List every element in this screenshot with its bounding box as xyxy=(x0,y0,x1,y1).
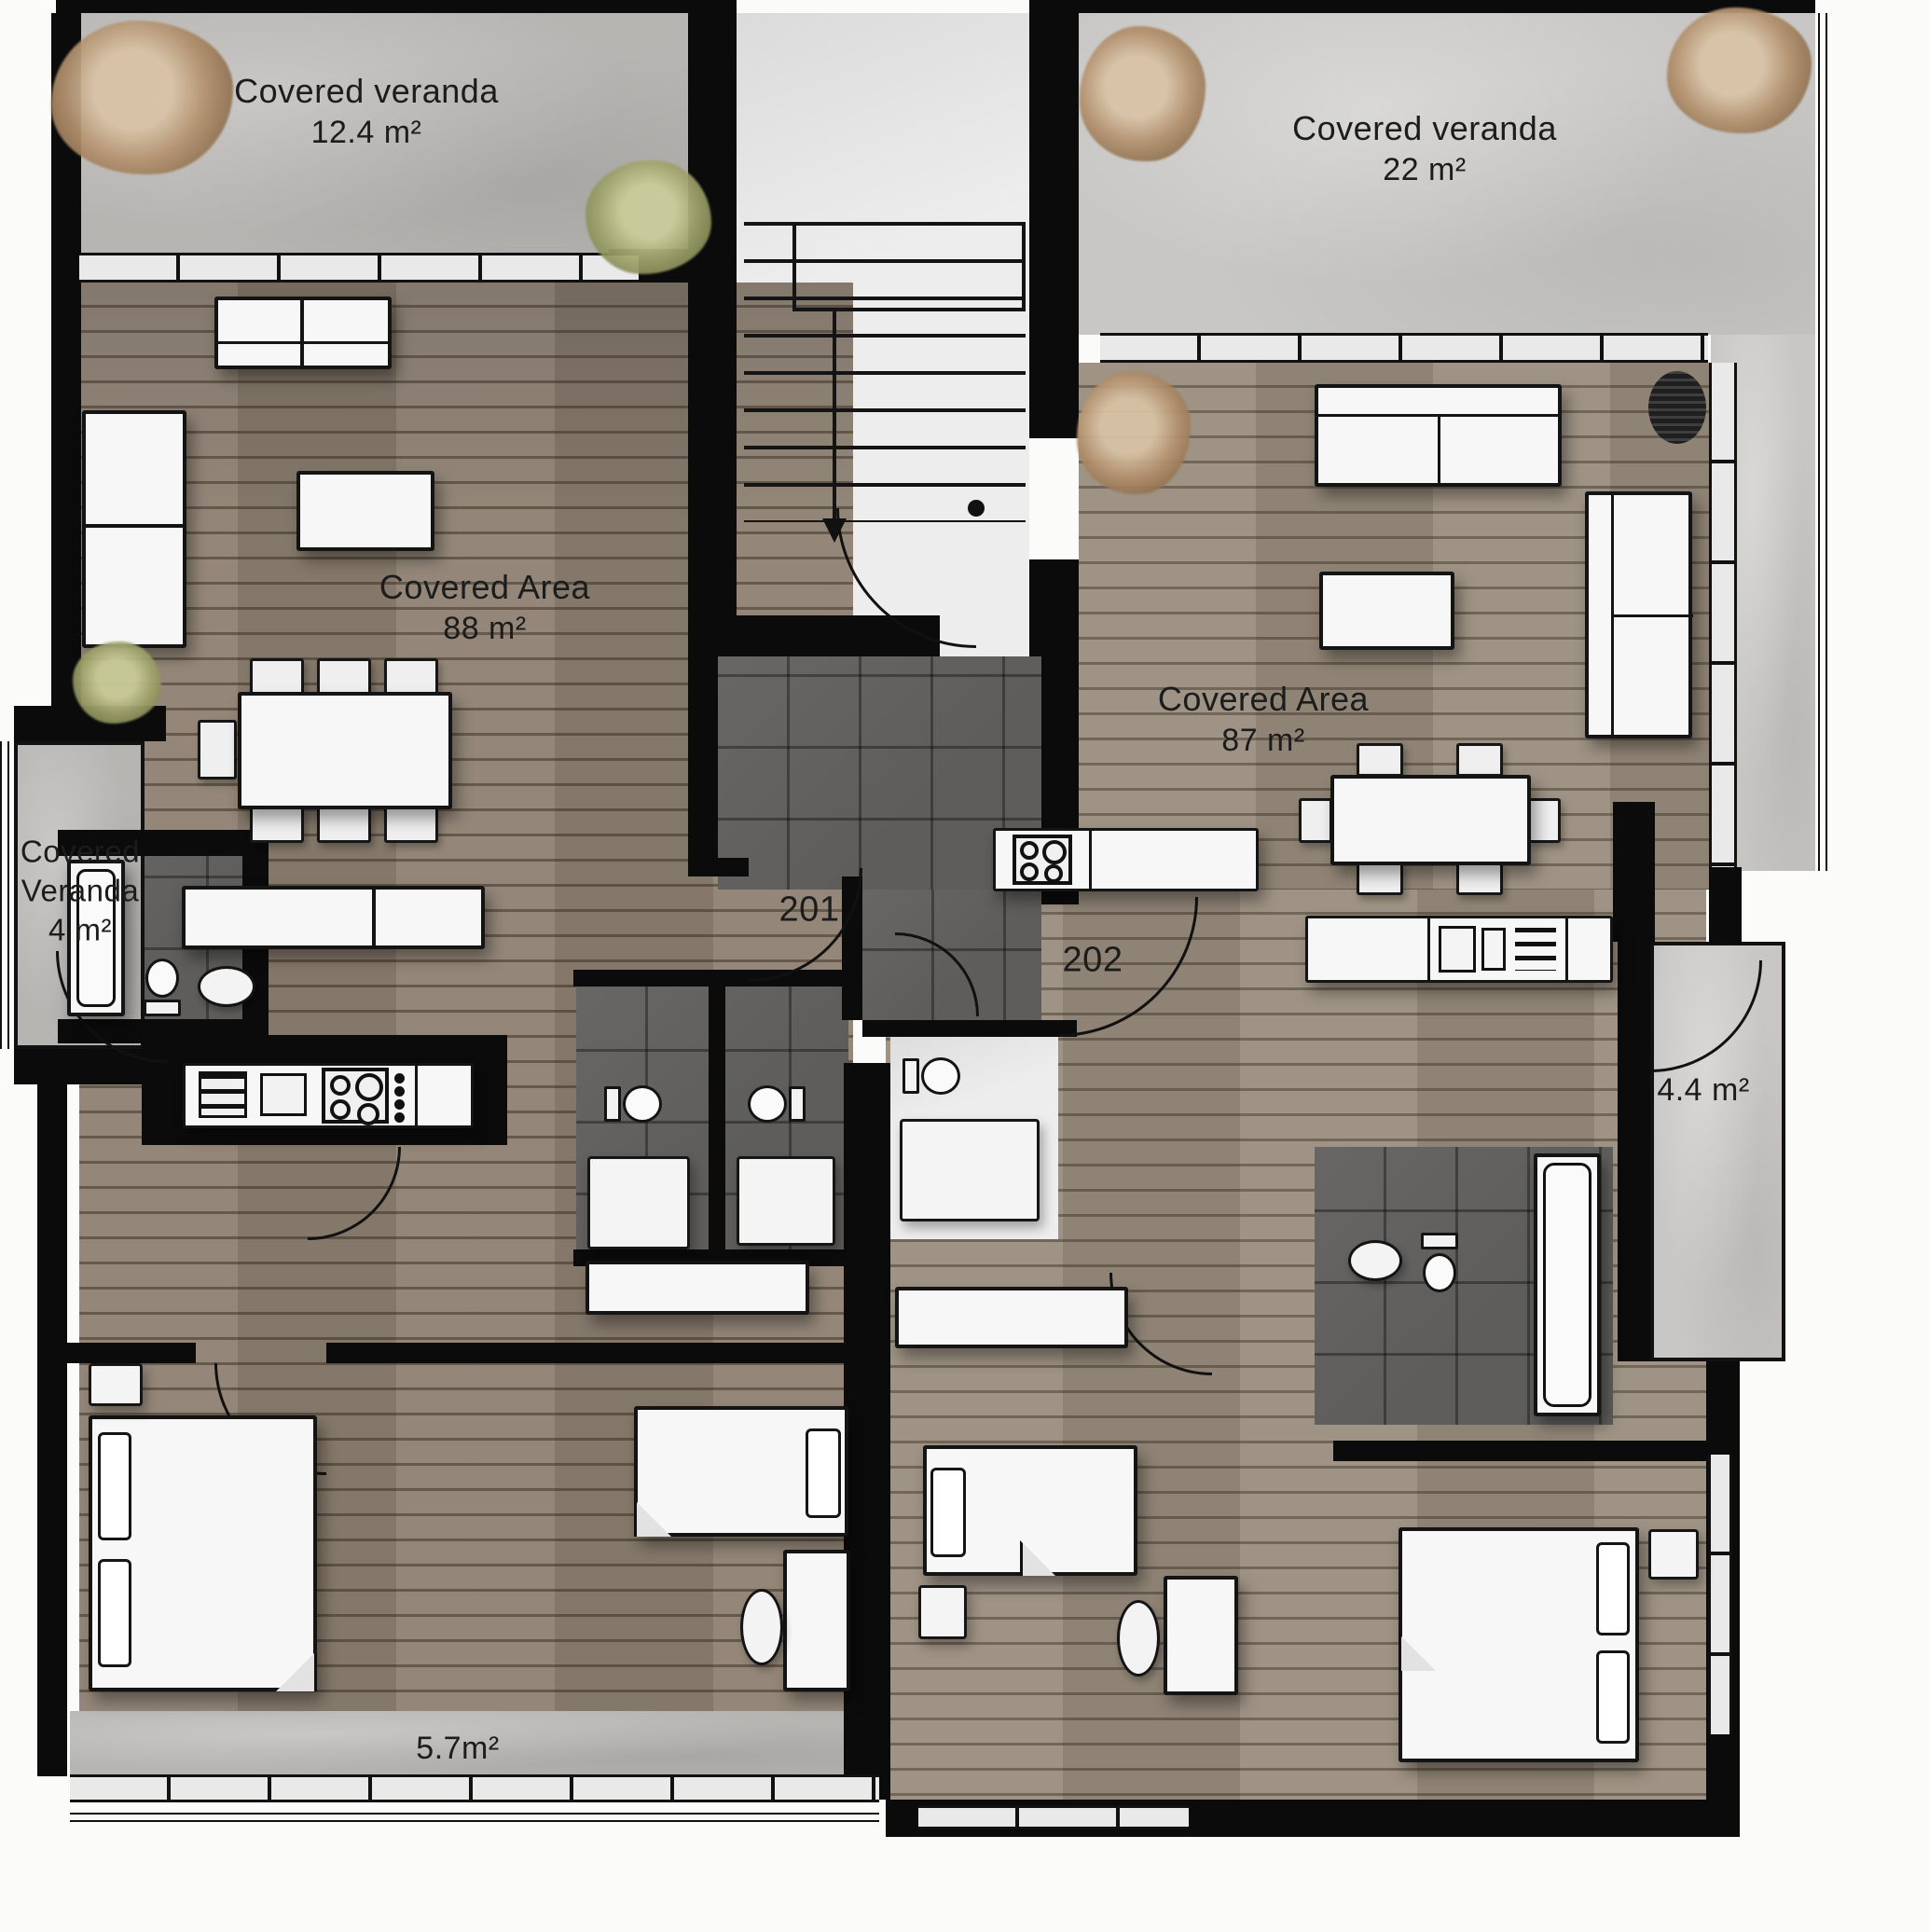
wall-left-outer-lower xyxy=(37,1082,67,1776)
label-veranda-top-left: Covered veranda 12.4 m² xyxy=(234,70,499,154)
dining-chair xyxy=(317,806,371,843)
plant-top-left xyxy=(51,21,233,174)
sofa-right-top xyxy=(1315,384,1562,487)
cutting-board xyxy=(260,1073,307,1116)
label-veranda-left-small: Covered Veranda 4 m² xyxy=(21,833,140,951)
wall-hall-left xyxy=(688,656,718,876)
wall-stair-right-lower xyxy=(1029,559,1079,656)
toilet-right-main xyxy=(1417,1233,1464,1294)
plant-top-left-green xyxy=(586,160,711,274)
dining-chair xyxy=(1456,862,1503,895)
sofa-left xyxy=(82,410,186,648)
wall-bedrooms-left-top-a xyxy=(65,1343,196,1363)
window-master-right xyxy=(1708,1455,1732,1734)
window-band-right xyxy=(1709,363,1737,867)
wall-stair-right-upper xyxy=(1029,0,1079,438)
bed-single-right xyxy=(923,1445,1137,1576)
dining-chair xyxy=(1357,862,1403,895)
desk-chair-left xyxy=(740,1589,783,1665)
wall-unit-divider xyxy=(844,1063,890,1800)
label-veranda-top-right: Covered veranda 22 m² xyxy=(1292,107,1557,191)
dining-table-left xyxy=(238,692,452,809)
toilet-left xyxy=(140,959,185,1016)
kitchen-counter-right xyxy=(1305,916,1613,983)
toilet-right-small xyxy=(902,1054,962,1098)
wall-kitchen-right-spur xyxy=(1613,802,1655,942)
shower-center xyxy=(587,1156,690,1249)
dining-chair xyxy=(250,658,304,696)
wall-right-window-spur xyxy=(1709,867,1742,944)
drying-rack-icon xyxy=(1515,928,1556,971)
wall-top-left xyxy=(56,0,704,13)
washer-center xyxy=(737,1156,835,1246)
window-hatch-right-outer xyxy=(1818,13,1833,871)
wall-top-right xyxy=(1079,0,1815,13)
dining-chair xyxy=(384,806,438,843)
window-band-bottom xyxy=(70,1774,879,1802)
dining-chair xyxy=(1456,743,1503,777)
stairs-railing xyxy=(833,308,836,522)
label-veranda-right-small: 4.4 m² xyxy=(1657,1070,1749,1111)
stairs-landing-outline xyxy=(792,222,1026,311)
wall-master-right-top xyxy=(1333,1441,1706,1461)
sofa-right-side xyxy=(1585,491,1692,738)
floor-plan: Covered veranda 12.4 m² Covered veranda … xyxy=(0,0,1929,1932)
column-right-veranda xyxy=(1648,371,1706,444)
desk-left xyxy=(783,1550,850,1691)
plant-left-small xyxy=(73,642,161,724)
plant-top-middle xyxy=(1080,26,1206,161)
desk-chair-right xyxy=(1117,1600,1160,1677)
sink-right-basin-large xyxy=(1439,926,1476,973)
bed-single-left xyxy=(634,1406,848,1537)
label-unit-202: 202 xyxy=(1063,938,1123,984)
label-unit-201: 201 xyxy=(779,888,840,933)
label-covered-area-left: Covered Area 88 m² xyxy=(379,566,590,650)
plant-top-right xyxy=(1667,7,1812,133)
dining-chair xyxy=(317,658,371,696)
desk-right xyxy=(1164,1576,1238,1695)
coffee-table-right xyxy=(1319,572,1454,650)
dining-chair xyxy=(250,806,304,843)
fridge-grill-icon xyxy=(199,1071,247,1118)
dining-chair xyxy=(384,658,438,696)
sink-right-main xyxy=(1348,1240,1402,1281)
nightstand-left xyxy=(89,1363,143,1406)
bed-master-right xyxy=(1399,1527,1639,1762)
wall-center-bath-divider xyxy=(709,987,725,1264)
wardrobe-right xyxy=(895,1287,1128,1348)
wall-stair-left xyxy=(688,0,737,619)
window-hatch-bottom xyxy=(70,1807,879,1822)
window-hatch-veranda4 xyxy=(0,741,14,1049)
plant-right-corner xyxy=(1077,371,1191,494)
wall-veranda44-left xyxy=(1618,942,1650,1361)
wall-bedrooms-left-top-b xyxy=(326,1343,853,1363)
dining-chair xyxy=(1527,798,1561,843)
window-bottom-right-unit xyxy=(918,1805,1189,1829)
kitchen-island-left xyxy=(182,886,485,949)
dining-table-right xyxy=(1330,775,1531,865)
wall-center-bath-top xyxy=(573,970,853,987)
stove-left xyxy=(322,1068,389,1124)
kitchen-counter-left xyxy=(183,1063,474,1128)
toilet-center-right xyxy=(746,1082,806,1126)
wall-door-201 xyxy=(688,858,749,876)
toilet-center-left xyxy=(604,1082,664,1126)
shower-right-small xyxy=(900,1119,1040,1221)
window-band-top-left xyxy=(79,253,639,283)
nightstand-right-master xyxy=(1648,1529,1699,1580)
sink-right-basin-small xyxy=(1481,928,1506,971)
wardrobe-mid-left xyxy=(586,1261,809,1315)
bathtub-right xyxy=(1534,1153,1601,1416)
label-veranda-bottom: 5.7m² xyxy=(416,1729,499,1770)
bed-master-left xyxy=(89,1415,317,1691)
label-covered-area-right: Covered Area 87 m² xyxy=(1158,678,1369,762)
stove-right xyxy=(1013,835,1072,885)
sink-left xyxy=(198,966,255,1007)
wall-bath-right-small-bottom xyxy=(862,1020,1077,1037)
dining-chair xyxy=(198,720,237,780)
nightstand-right-small xyxy=(918,1585,967,1639)
dining-chair xyxy=(1299,798,1332,843)
coffee-table-left xyxy=(296,471,434,551)
window-band-top-right xyxy=(1100,333,1708,363)
sideboard-left xyxy=(214,297,392,369)
kitchen-counter-right-stove xyxy=(993,828,1259,891)
